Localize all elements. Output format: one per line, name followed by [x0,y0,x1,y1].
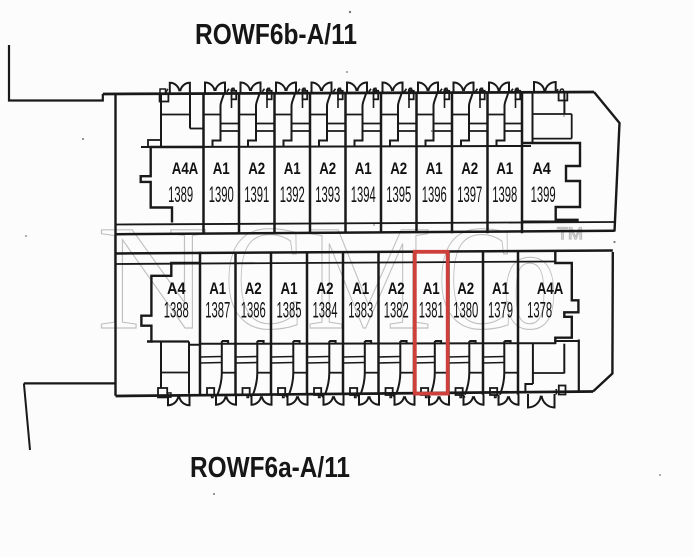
svg-text:A2: A2 [319,160,336,178]
svg-text:A1: A1 [281,280,298,298]
svg-text:1388: 1388 [164,298,189,323]
svg-text:N: N [97,195,209,361]
svg-text:1394: 1394 [351,182,376,207]
svg-text:1398: 1398 [492,182,517,207]
svg-text:1379: 1379 [488,298,513,323]
svg-text:1378: 1378 [527,298,552,323]
svg-text:A2: A2 [388,280,405,298]
svg-text:A1: A1 [426,160,443,178]
svg-text:1390: 1390 [209,182,234,207]
svg-text:1391: 1391 [244,182,269,207]
svg-text:A1: A1 [352,280,369,298]
svg-text:A2: A2 [390,160,407,178]
svg-text:1386: 1386 [241,298,266,323]
svg-text:A1: A1 [284,160,301,178]
svg-text:TM: TM [557,224,583,243]
svg-text:A4A: A4A [537,280,564,298]
svg-text:A2: A2 [245,280,262,298]
svg-text:1385: 1385 [277,298,302,323]
svg-text:A1: A1 [496,160,513,178]
svg-text:1399: 1399 [531,182,556,207]
svg-text:1381: 1381 [419,298,444,323]
svg-text:A1: A1 [209,280,226,298]
svg-text:1383: 1383 [348,298,373,323]
svg-text:1392: 1392 [280,182,305,207]
svg-text:A4A: A4A [172,160,199,178]
svg-text:A1: A1 [355,160,372,178]
svg-text:1387: 1387 [205,298,230,323]
svg-text:A2: A2 [248,160,265,178]
svg-text:1389: 1389 [168,182,193,207]
svg-text:1380: 1380 [453,298,478,323]
svg-text:A1: A1 [423,280,440,298]
svg-text:1382: 1382 [384,298,409,323]
svg-text:A1: A1 [492,280,509,298]
svg-text:A2: A2 [461,160,478,178]
svg-text:A2: A2 [317,280,334,298]
svg-text:1396: 1396 [422,182,447,207]
svg-text:ROWF6b-A/11: ROWF6b-A/11 [195,19,357,51]
svg-text:1393: 1393 [315,182,340,207]
svg-text:ROWF6a-A/11: ROWF6a-A/11 [190,452,350,484]
svg-text:1397: 1397 [457,182,482,207]
svg-text:A4: A4 [532,160,551,178]
svg-text:1395: 1395 [386,182,411,207]
svg-text:A1: A1 [213,160,230,178]
svg-text:A2: A2 [457,280,474,298]
svg-text:1384: 1384 [313,298,338,323]
svg-text:o: o [502,195,558,361]
svg-text:A4: A4 [167,280,186,298]
